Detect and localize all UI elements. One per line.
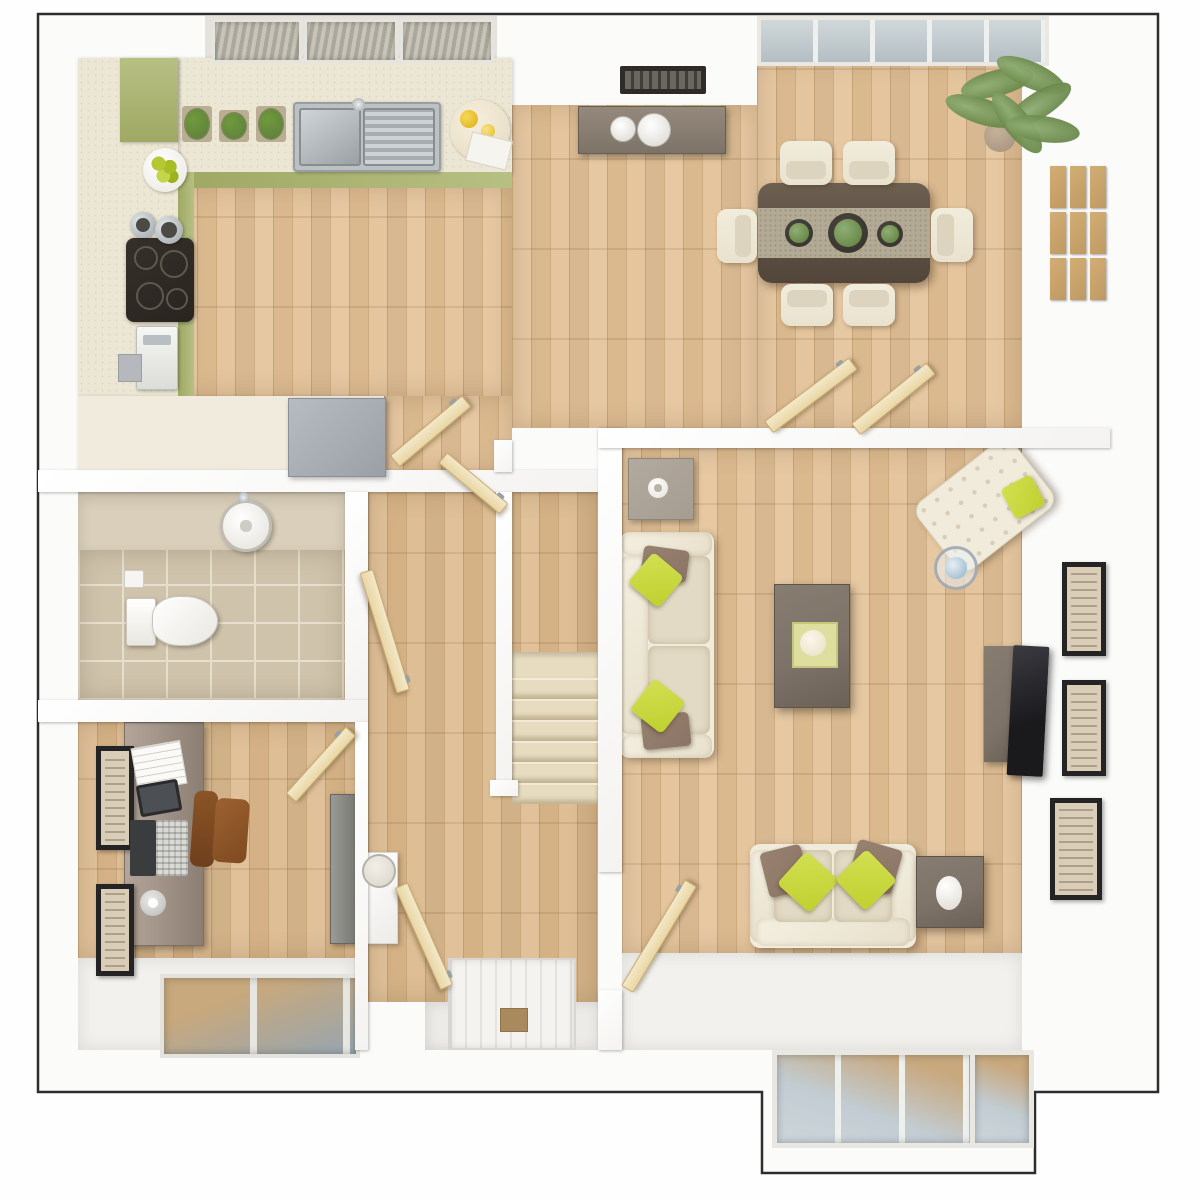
door-mat (500, 1008, 528, 1032)
centerpiece-plant-icon (828, 213, 868, 253)
green-cushion (1000, 474, 1046, 520)
stair-step (512, 678, 598, 699)
sofa-back (756, 918, 910, 946)
study-window (160, 974, 360, 1058)
dining-chair (780, 141, 832, 185)
laptop-screen (130, 820, 156, 876)
stair-step (512, 699, 598, 720)
dining-chair (931, 208, 973, 262)
coffee-machine (136, 326, 178, 390)
chair-seat (212, 798, 250, 864)
green-unit-fronts-top (190, 172, 512, 188)
burner-icon (134, 246, 158, 270)
floor-plan (0, 0, 1200, 1200)
wooden-frame-cell (1070, 258, 1086, 300)
laptop-keyboard (156, 820, 188, 876)
wall-frame (1050, 798, 1102, 900)
stair-step (512, 783, 598, 804)
bay-window-glazing (772, 1050, 980, 1148)
toilet-bowl (152, 596, 218, 646)
palm-plant (950, 58, 1080, 173)
mirror-icon (362, 854, 396, 888)
wall-vent-icon (620, 66, 706, 94)
serving-bowl-icon (610, 116, 636, 142)
wall-frame (1062, 680, 1106, 776)
tall-green-cabinet (120, 58, 178, 142)
wall-dining-living (598, 428, 1110, 448)
burner-icon (160, 250, 188, 278)
wall-frame (1062, 562, 1106, 656)
stair-landing (512, 652, 598, 678)
laptop (130, 820, 188, 876)
roof-window-icon (304, 19, 398, 63)
wall-hall-living-lower (598, 990, 622, 1050)
fruit-bowl (143, 148, 187, 192)
wooden-frame-cell (1050, 212, 1066, 254)
burner-icon (166, 288, 188, 310)
faucet-icon (352, 98, 365, 111)
centerpiece-plant-icon (785, 219, 813, 247)
kitchen-floor (178, 186, 512, 396)
bay-window-side-pane (970, 1050, 1034, 1148)
herb-pot-icon (256, 106, 286, 142)
lemon-icon (460, 110, 478, 128)
herb-pot-icon (219, 110, 249, 142)
study-cabinet (330, 794, 358, 944)
front-door (448, 958, 576, 1050)
limes-icon (149, 154, 181, 186)
stair-newel (490, 780, 518, 796)
wall-stub (494, 440, 512, 472)
centerpiece-plant-icon (877, 221, 903, 247)
television (1007, 645, 1050, 777)
stair-step (512, 762, 598, 783)
wooden-frame-cell (1090, 166, 1106, 208)
living-room-window-sill (622, 953, 1022, 1050)
toilet-roll-icon (124, 570, 144, 588)
stair-step (512, 720, 598, 741)
wall-bathroom-study (38, 700, 368, 722)
pedestal-basin (220, 500, 272, 552)
saucepan-icon (130, 212, 156, 238)
herb-pot-icon (182, 106, 212, 142)
bathroom-upper-floor (78, 492, 345, 550)
gray-appliance (288, 398, 386, 477)
appliance-front (118, 354, 142, 382)
desk-lamp-icon (140, 890, 166, 916)
dining-chair (781, 284, 833, 326)
staircase (512, 652, 598, 792)
stair-steps (512, 678, 598, 792)
candle-icon (648, 478, 668, 498)
wooden-frame-cell (1070, 212, 1086, 254)
wall-frame (96, 884, 134, 976)
office-chair (189, 786, 253, 874)
roof-window-icon (212, 19, 302, 63)
serving-bowl-icon (637, 113, 671, 147)
sink-basin (299, 108, 361, 166)
stair-step (512, 741, 598, 762)
wooden-frame-cell (1050, 258, 1066, 300)
vase-icon (936, 876, 962, 910)
wall-bathroom-hall (345, 492, 368, 700)
wall-study-hall (355, 722, 368, 1050)
wooden-frame-cell (1090, 212, 1106, 254)
sink-drainer (363, 108, 435, 166)
wall-frame (96, 746, 134, 850)
wooden-frame-grid (1050, 166, 1106, 300)
round-glass-table (934, 546, 978, 590)
dining-chair (717, 209, 757, 263)
tray-bowl-icon (800, 630, 826, 656)
saucepan-icon (155, 216, 183, 244)
dining-chair (843, 141, 895, 185)
basin-tap-icon (238, 492, 249, 503)
wall-hall-living-upper (598, 428, 622, 872)
wooden-frame-cell (1090, 258, 1106, 300)
roof-window-icon (400, 19, 494, 63)
induction-hob (126, 238, 194, 322)
stair-half-wall (496, 492, 512, 792)
dining-chair (843, 284, 895, 326)
burner-icon (136, 282, 164, 310)
